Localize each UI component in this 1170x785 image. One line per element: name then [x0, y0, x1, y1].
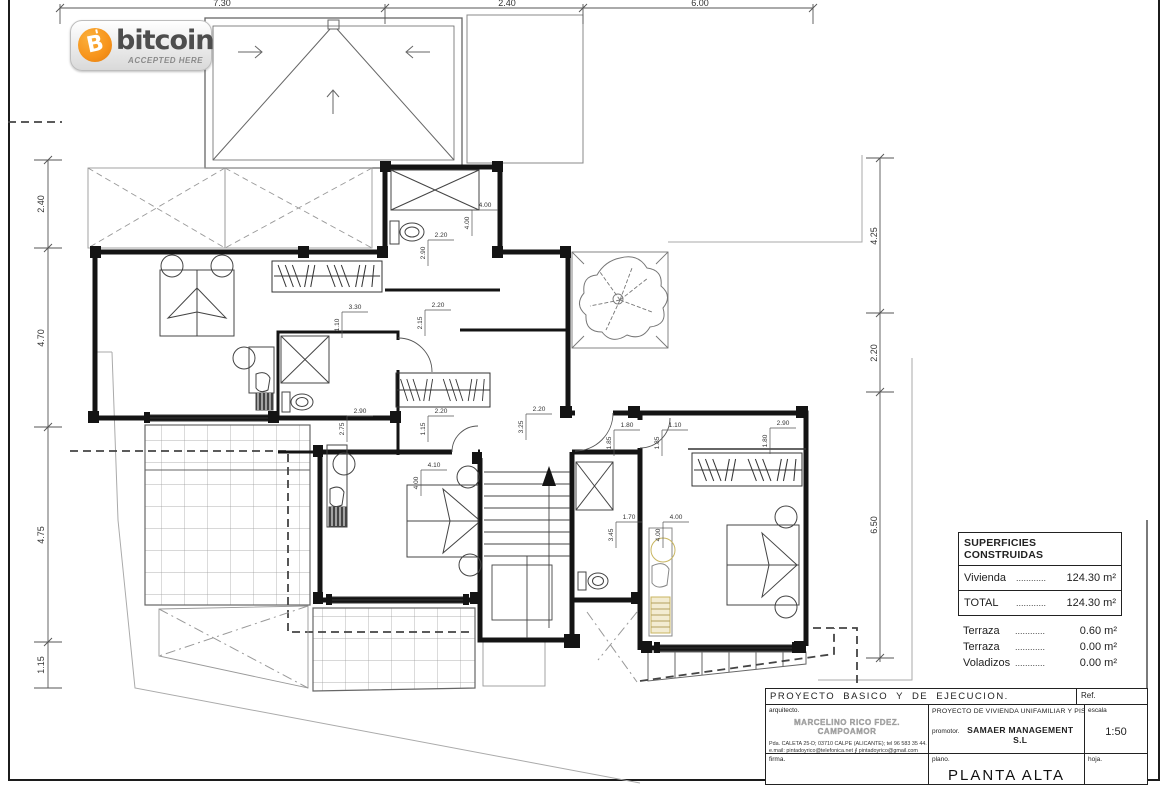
bitcoin-coin-icon: B — [78, 28, 112, 62]
arquitecto-label: arquitecto. — [769, 707, 925, 714]
terrace-grid-center — [313, 608, 475, 691]
void-hatch — [88, 168, 372, 248]
svg-text:2.90: 2.90 — [777, 420, 790, 427]
tree-symbol — [572, 252, 668, 348]
svg-text:4.00: 4.00 — [479, 202, 492, 209]
plano-value: PLANTA ALTA — [932, 767, 1081, 784]
area-row-voladizos: Voladizos ............ 0.00 m² — [958, 655, 1122, 671]
toilet-icon — [578, 572, 608, 590]
plano-label: plano. — [932, 756, 1081, 763]
svg-text:4.00: 4.00 — [464, 216, 471, 229]
firma-label: firma. — [769, 756, 925, 763]
hip-roof — [205, 18, 462, 168]
svg-text:2.20: 2.20 — [435, 232, 448, 239]
svg-text:2.20: 2.20 — [533, 406, 546, 413]
architect-address: Pda. CALETA 25-D; 03710 CALPE (ALICANTE)… — [769, 741, 925, 748]
escala-value: 1:50 — [1088, 726, 1144, 738]
drawing-sheet: 7.30 2.40 6.00 2.40 4.70 4.75 1.15 4.25 … — [0, 0, 1170, 785]
upper-terrace-outline — [467, 15, 583, 163]
area-row-vivienda: Vivienda ............ 124.30 m² — [959, 566, 1121, 590]
areas-table-title: SUPERFICIES CONSTRUIDAS — [959, 533, 1121, 566]
roof-slope-arrow-right-icon — [238, 46, 262, 58]
dim-left-4: 1.15 — [36, 656, 46, 674]
svg-text:3.30: 3.30 — [349, 304, 362, 311]
vanity-center-bedroom — [327, 445, 355, 527]
svg-text:3.25: 3.25 — [518, 420, 525, 433]
hoja-label: hoja. — [1088, 756, 1144, 763]
dim-right-2: 2.20 — [869, 344, 879, 362]
bitcoin-accepted-badge: B bitcoin ACCEPTED HERE — [70, 20, 212, 71]
svg-text:1.85: 1.85 — [606, 436, 613, 449]
wardrobe-right-bedroom — [688, 449, 806, 486]
svg-text:1.80: 1.80 — [621, 422, 634, 429]
area-row-terraza-1: Terraza ............ 0.60 m² — [958, 623, 1122, 639]
dim-right-3: 6.50 — [869, 516, 879, 534]
promotor-label: promotor. — [932, 728, 959, 735]
dim-top-1: 7.30 — [213, 0, 231, 8]
architect-email: e.mail: pintadoyrico@telefonica.net ∮ pi… — [769, 748, 925, 753]
dim-top-2: 2.40 — [498, 0, 516, 8]
svg-text:2.90: 2.90 — [354, 408, 367, 415]
toilet-icon — [282, 392, 313, 412]
svg-text:2.15: 2.15 — [417, 316, 424, 329]
vanity-master — [233, 347, 274, 410]
svg-text:4.10: 4.10 — [428, 462, 441, 469]
bitcoin-wordmark: bitcoin — [116, 25, 214, 56]
lower-landing-outline — [483, 642, 545, 686]
project-title: PROYECTO DE VIVIENDA UNIFAMILIAR Y PISCI… — [932, 708, 1081, 715]
svg-text:1.10: 1.10 — [334, 318, 341, 331]
wardrobe-master — [272, 261, 382, 292]
svg-text:1.15: 1.15 — [420, 422, 427, 435]
areas-table: SUPERFICIES CONSTRUIDAS Vivienda .......… — [958, 532, 1122, 671]
svg-text:4.00: 4.00 — [670, 514, 683, 521]
bitcoin-b-symbol: B — [85, 32, 106, 57]
project-type: PROYECTO BASICO Y DE EJECUCION. — [766, 689, 1077, 704]
escala-label: escala — [1088, 707, 1144, 714]
svg-text:2.20: 2.20 — [432, 302, 445, 309]
toilet-icon — [390, 221, 424, 244]
area-row-total: TOTAL ............ 124.30 m² — [959, 590, 1121, 615]
roof-slope-arrow-left-icon — [406, 46, 430, 58]
svg-text:1.70: 1.70 — [623, 514, 636, 521]
svg-text:2.90: 2.90 — [420, 246, 427, 259]
vanity-right-bedroom — [649, 528, 675, 636]
area-row-terraza-2: Terraza ............ 0.00 m² — [958, 639, 1122, 655]
svg-text:3.45: 3.45 — [608, 528, 615, 541]
svg-text:1.85: 1.85 — [654, 436, 661, 449]
ref-label: Ref. — [1077, 689, 1147, 704]
dim-right-1: 4.25 — [869, 227, 879, 245]
stairs-up-arrow-icon — [542, 466, 556, 486]
roof-slope-arrow-up-icon — [327, 90, 339, 114]
promotor-name: SAMAER MANAGEMENT S.L — [959, 725, 1081, 745]
svg-text:2.75: 2.75 — [339, 422, 346, 435]
svg-text:1.80: 1.80 — [762, 434, 769, 447]
dim-left-3: 4.75 — [36, 526, 46, 544]
dim-top-3: 6.00 — [691, 0, 709, 8]
bed-master — [160, 255, 234, 336]
bitcoin-tagline: ACCEPTED HERE — [128, 56, 203, 65]
svg-text:4.00: 4.00 — [655, 528, 662, 541]
svg-text:1.10: 1.10 — [669, 422, 682, 429]
svg-text:4.00: 4.00 — [413, 476, 420, 489]
architect-name: MARCELINO RICO FDEZ. CAMPOAMOR — [769, 718, 925, 736]
dim-left-2: 4.70 — [36, 329, 46, 347]
svg-text:2.20: 2.20 — [435, 408, 448, 415]
dim-left-1: 2.40 — [36, 195, 46, 213]
stairs — [484, 466, 570, 638]
title-block: PROYECTO BASICO Y DE EJECUCION. Ref. arq… — [765, 688, 1148, 785]
door-arcs — [398, 338, 670, 452]
wardrobe-hall — [396, 373, 490, 407]
showers — [281, 170, 613, 510]
bed-right-bedroom — [727, 506, 799, 618]
